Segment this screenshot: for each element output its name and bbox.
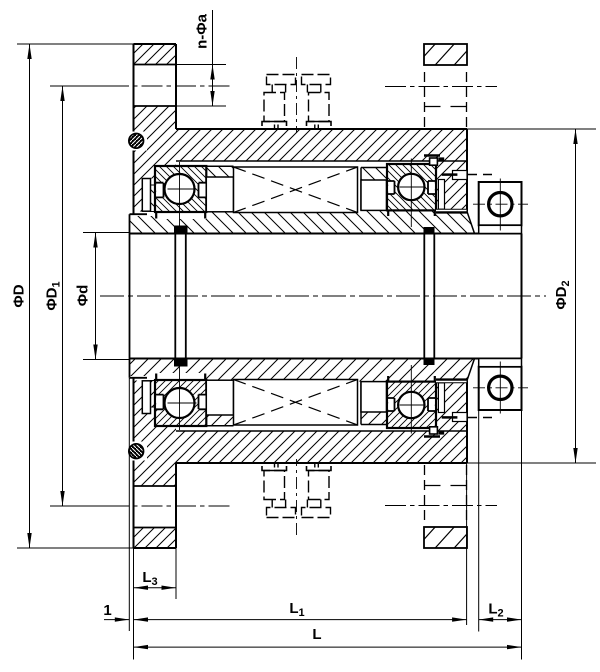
svg-text:L: L — [312, 626, 321, 643]
svg-text:1: 1 — [103, 602, 111, 619]
svg-text:n-Φa: n-Φa — [194, 13, 211, 48]
svg-text:Φd: Φd — [75, 285, 92, 306]
svg-text:ΦD: ΦD — [11, 284, 28, 307]
